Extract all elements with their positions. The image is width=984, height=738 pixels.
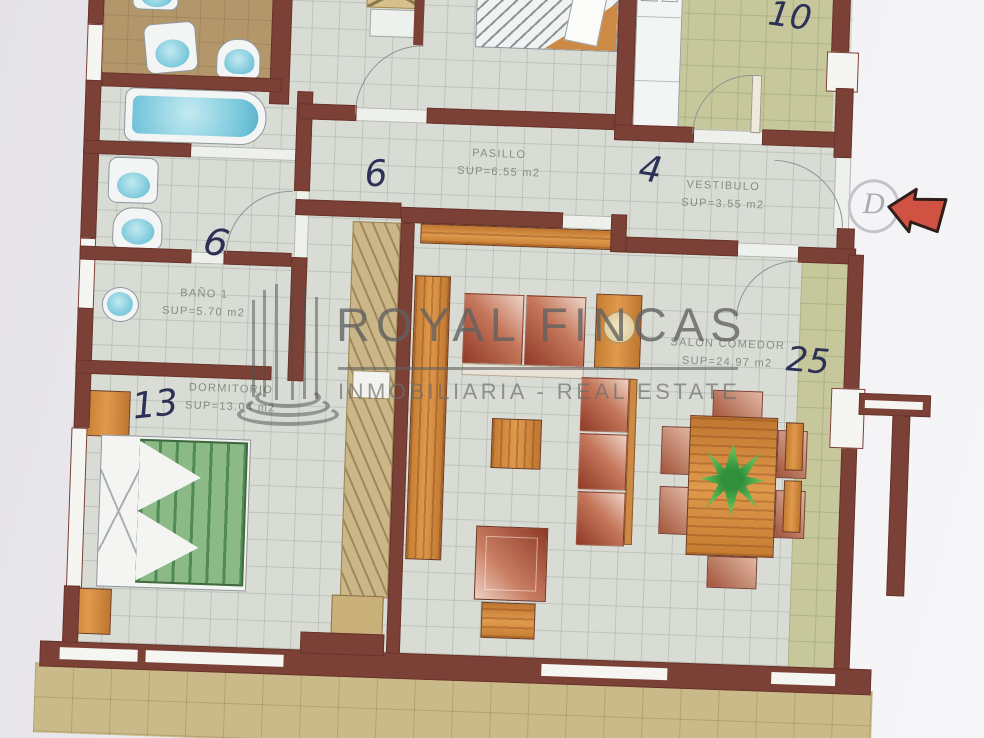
dining-chair <box>660 426 692 475</box>
armchair <box>594 294 643 370</box>
double-bed <box>96 434 251 591</box>
wardrobe-shelf <box>352 370 391 399</box>
handwritten-number-cocina: 10 <box>766 0 814 39</box>
bidet-bowl <box>121 218 155 245</box>
counter-divider <box>637 16 681 19</box>
room-label-pasillo: PASILLO SUP=6.55 m2 <box>418 143 579 184</box>
plant-icon <box>699 442 765 516</box>
wall-segment <box>831 0 851 54</box>
wall-segment <box>614 124 695 143</box>
stove-icon: K <box>641 0 658 2</box>
side-table <box>480 602 535 640</box>
door-opening <box>738 243 798 259</box>
window-slot <box>145 650 283 667</box>
bathtub-water <box>132 95 259 137</box>
sofa-cushion <box>576 491 626 547</box>
sofa-cushion <box>580 377 630 433</box>
single-bed <box>475 0 619 52</box>
kitchen-counter: K O <box>632 0 683 132</box>
window <box>826 52 859 93</box>
sofa-side <box>574 375 638 551</box>
gallery-door-panel <box>782 480 802 533</box>
floor-plan-photo: K O <box>0 0 984 738</box>
toilet-lid <box>117 172 151 199</box>
window-slot <box>865 400 923 410</box>
dining-chair <box>658 486 690 535</box>
bidet-bowl <box>224 48 255 74</box>
wall-segment <box>610 214 627 253</box>
toilet-icon <box>132 0 179 11</box>
exterior-wall <box>886 416 910 597</box>
lounge-chair <box>474 526 549 602</box>
pass-opening <box>563 214 611 230</box>
wall-segment <box>300 631 385 656</box>
sofa-cushion <box>462 293 524 365</box>
toilet-lid <box>154 38 190 69</box>
lounge-chair-inner <box>484 536 538 592</box>
sofa-cushion <box>524 295 586 367</box>
sofa-main <box>458 289 595 380</box>
toilet-icon <box>107 157 159 205</box>
floor-plan: K O <box>0 0 984 738</box>
armchair-cushion <box>603 311 636 344</box>
room-label-vestibulo: VESTIBULO SUP=3.55 m2 <box>647 175 798 215</box>
wardrobe-end-panel <box>330 595 383 637</box>
bathtub-icon <box>124 87 268 146</box>
bidet-icon <box>112 207 163 251</box>
window-slot <box>771 672 835 686</box>
sofa-cushion <box>578 433 628 491</box>
exterior-wall <box>858 393 931 417</box>
sink-bowl <box>106 292 133 317</box>
toilet-icon <box>143 20 199 74</box>
dining-chair <box>706 556 757 590</box>
bidet-icon <box>216 38 261 80</box>
toilet-lid <box>140 0 173 8</box>
door-leaf <box>413 0 425 45</box>
entrance-arrow-icon <box>881 178 952 244</box>
room-label-bano: BAÑO 1 SUP=5.70 m2 <box>133 283 274 323</box>
wall-segment <box>833 88 853 159</box>
handwritten-number-dormitorio: 13 <box>130 382 180 428</box>
handwritten-number-pasillo: 6 <box>363 153 389 195</box>
room-label-salon: SALON COMEDOR SUP=24.97 m2 <box>652 334 803 374</box>
counter-divider <box>635 80 679 83</box>
handwritten-number-salon: 25 <box>785 339 832 383</box>
sink-mark-icon: O <box>662 0 678 2</box>
window-slot <box>59 647 137 662</box>
dining-table <box>685 415 778 558</box>
wall-segment <box>88 0 106 24</box>
door-leaf <box>750 75 762 133</box>
coffee-table <box>490 418 542 470</box>
window-slot <box>541 664 667 680</box>
wall-segment <box>298 103 357 121</box>
gallery-door-panel <box>784 422 804 471</box>
